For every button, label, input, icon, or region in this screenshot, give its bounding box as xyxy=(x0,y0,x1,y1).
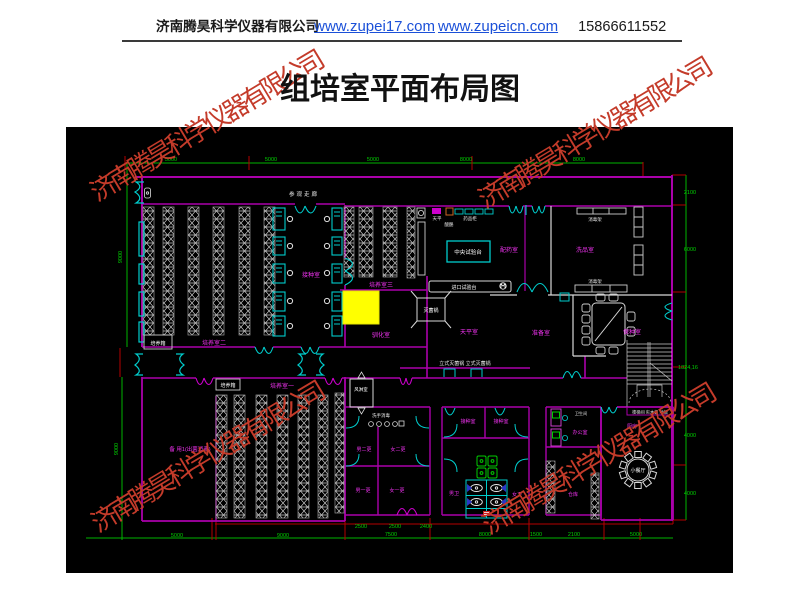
svg-text:培养箱: 培养箱 xyxy=(150,340,165,347)
svg-text:洗手消毒: 洗手消毒 xyxy=(372,412,390,419)
svg-text:办公室: 办公室 xyxy=(572,429,587,436)
svg-text:5000: 5000 xyxy=(630,532,642,538)
svg-text:女二更: 女二更 xyxy=(390,446,405,453)
svg-text:培养箱: 培养箱 xyxy=(220,382,235,389)
svg-text:卫生间: 卫生间 xyxy=(575,410,588,417)
svg-text:接种室: 接种室 xyxy=(302,271,320,279)
svg-text:药品柜: 药品柜 xyxy=(463,215,477,222)
svg-text:配药室: 配药室 xyxy=(500,246,518,254)
svg-text:参观走廊: 参观走廊 xyxy=(289,190,319,198)
svg-text:7500: 7500 xyxy=(385,532,397,538)
svg-text:天平: 天平 xyxy=(433,216,442,222)
svg-text:立式灭菌锅 立式灭菌锅: 立式灭菌锅 立式灭菌锅 xyxy=(439,360,490,367)
svg-text:进口试验台: 进口试验台 xyxy=(451,284,476,291)
svg-text:风淋室: 风淋室 xyxy=(354,386,368,393)
svg-text:女一更: 女一更 xyxy=(389,487,404,494)
svg-text:8000: 8000 xyxy=(460,157,472,163)
svg-text:洗品室: 洗品室 xyxy=(576,246,594,254)
svg-text:消毒架: 消毒架 xyxy=(588,216,602,223)
svg-text:小餐厅: 小餐厅 xyxy=(630,467,645,474)
svg-text:1824,16: 1824,16 xyxy=(678,365,698,371)
svg-text:中央试验台: 中央试验台 xyxy=(454,248,482,256)
svg-text:保种室: 保种室 xyxy=(623,328,641,336)
svg-text:2100: 2100 xyxy=(568,532,580,538)
svg-text:接种室: 接种室 xyxy=(493,418,508,425)
svg-text:5000: 5000 xyxy=(265,157,277,163)
svg-text:2500: 2500 xyxy=(389,524,401,530)
svg-text:2100: 2100 xyxy=(684,190,696,196)
svg-text:酸酪: 酸酪 xyxy=(445,221,454,228)
svg-text:准备室: 准备室 xyxy=(532,329,550,337)
svg-text:消毒架: 消毒架 xyxy=(588,278,602,285)
svg-text:2500: 2500 xyxy=(355,524,367,530)
svg-text:9000: 9000 xyxy=(118,251,124,263)
svg-text:6000: 6000 xyxy=(684,247,696,253)
svg-text:2400: 2400 xyxy=(420,524,432,530)
svg-text:5000: 5000 xyxy=(171,533,183,539)
svg-text:9000: 9000 xyxy=(277,533,289,539)
svg-text:培养室二: 培养室二 xyxy=(202,339,226,347)
svg-text:天平室: 天平室 xyxy=(460,328,478,336)
svg-text:4000: 4000 xyxy=(684,491,696,497)
svg-text:1500: 1500 xyxy=(530,532,542,538)
svg-text:培养室三: 培养室三 xyxy=(369,281,393,289)
svg-text:男一更: 男一更 xyxy=(355,488,370,494)
svg-text:男二更: 男二更 xyxy=(356,447,371,453)
svg-text:5000: 5000 xyxy=(367,157,379,163)
svg-text:男卫: 男卫 xyxy=(449,491,459,497)
svg-text:驯化室: 驯化室 xyxy=(372,331,390,339)
svg-text:4000: 4000 xyxy=(684,433,696,439)
svg-text:灭菌锅: 灭菌锅 xyxy=(423,307,438,314)
svg-text:9000: 9000 xyxy=(114,443,120,455)
svg-text:接种室: 接种室 xyxy=(460,418,475,425)
